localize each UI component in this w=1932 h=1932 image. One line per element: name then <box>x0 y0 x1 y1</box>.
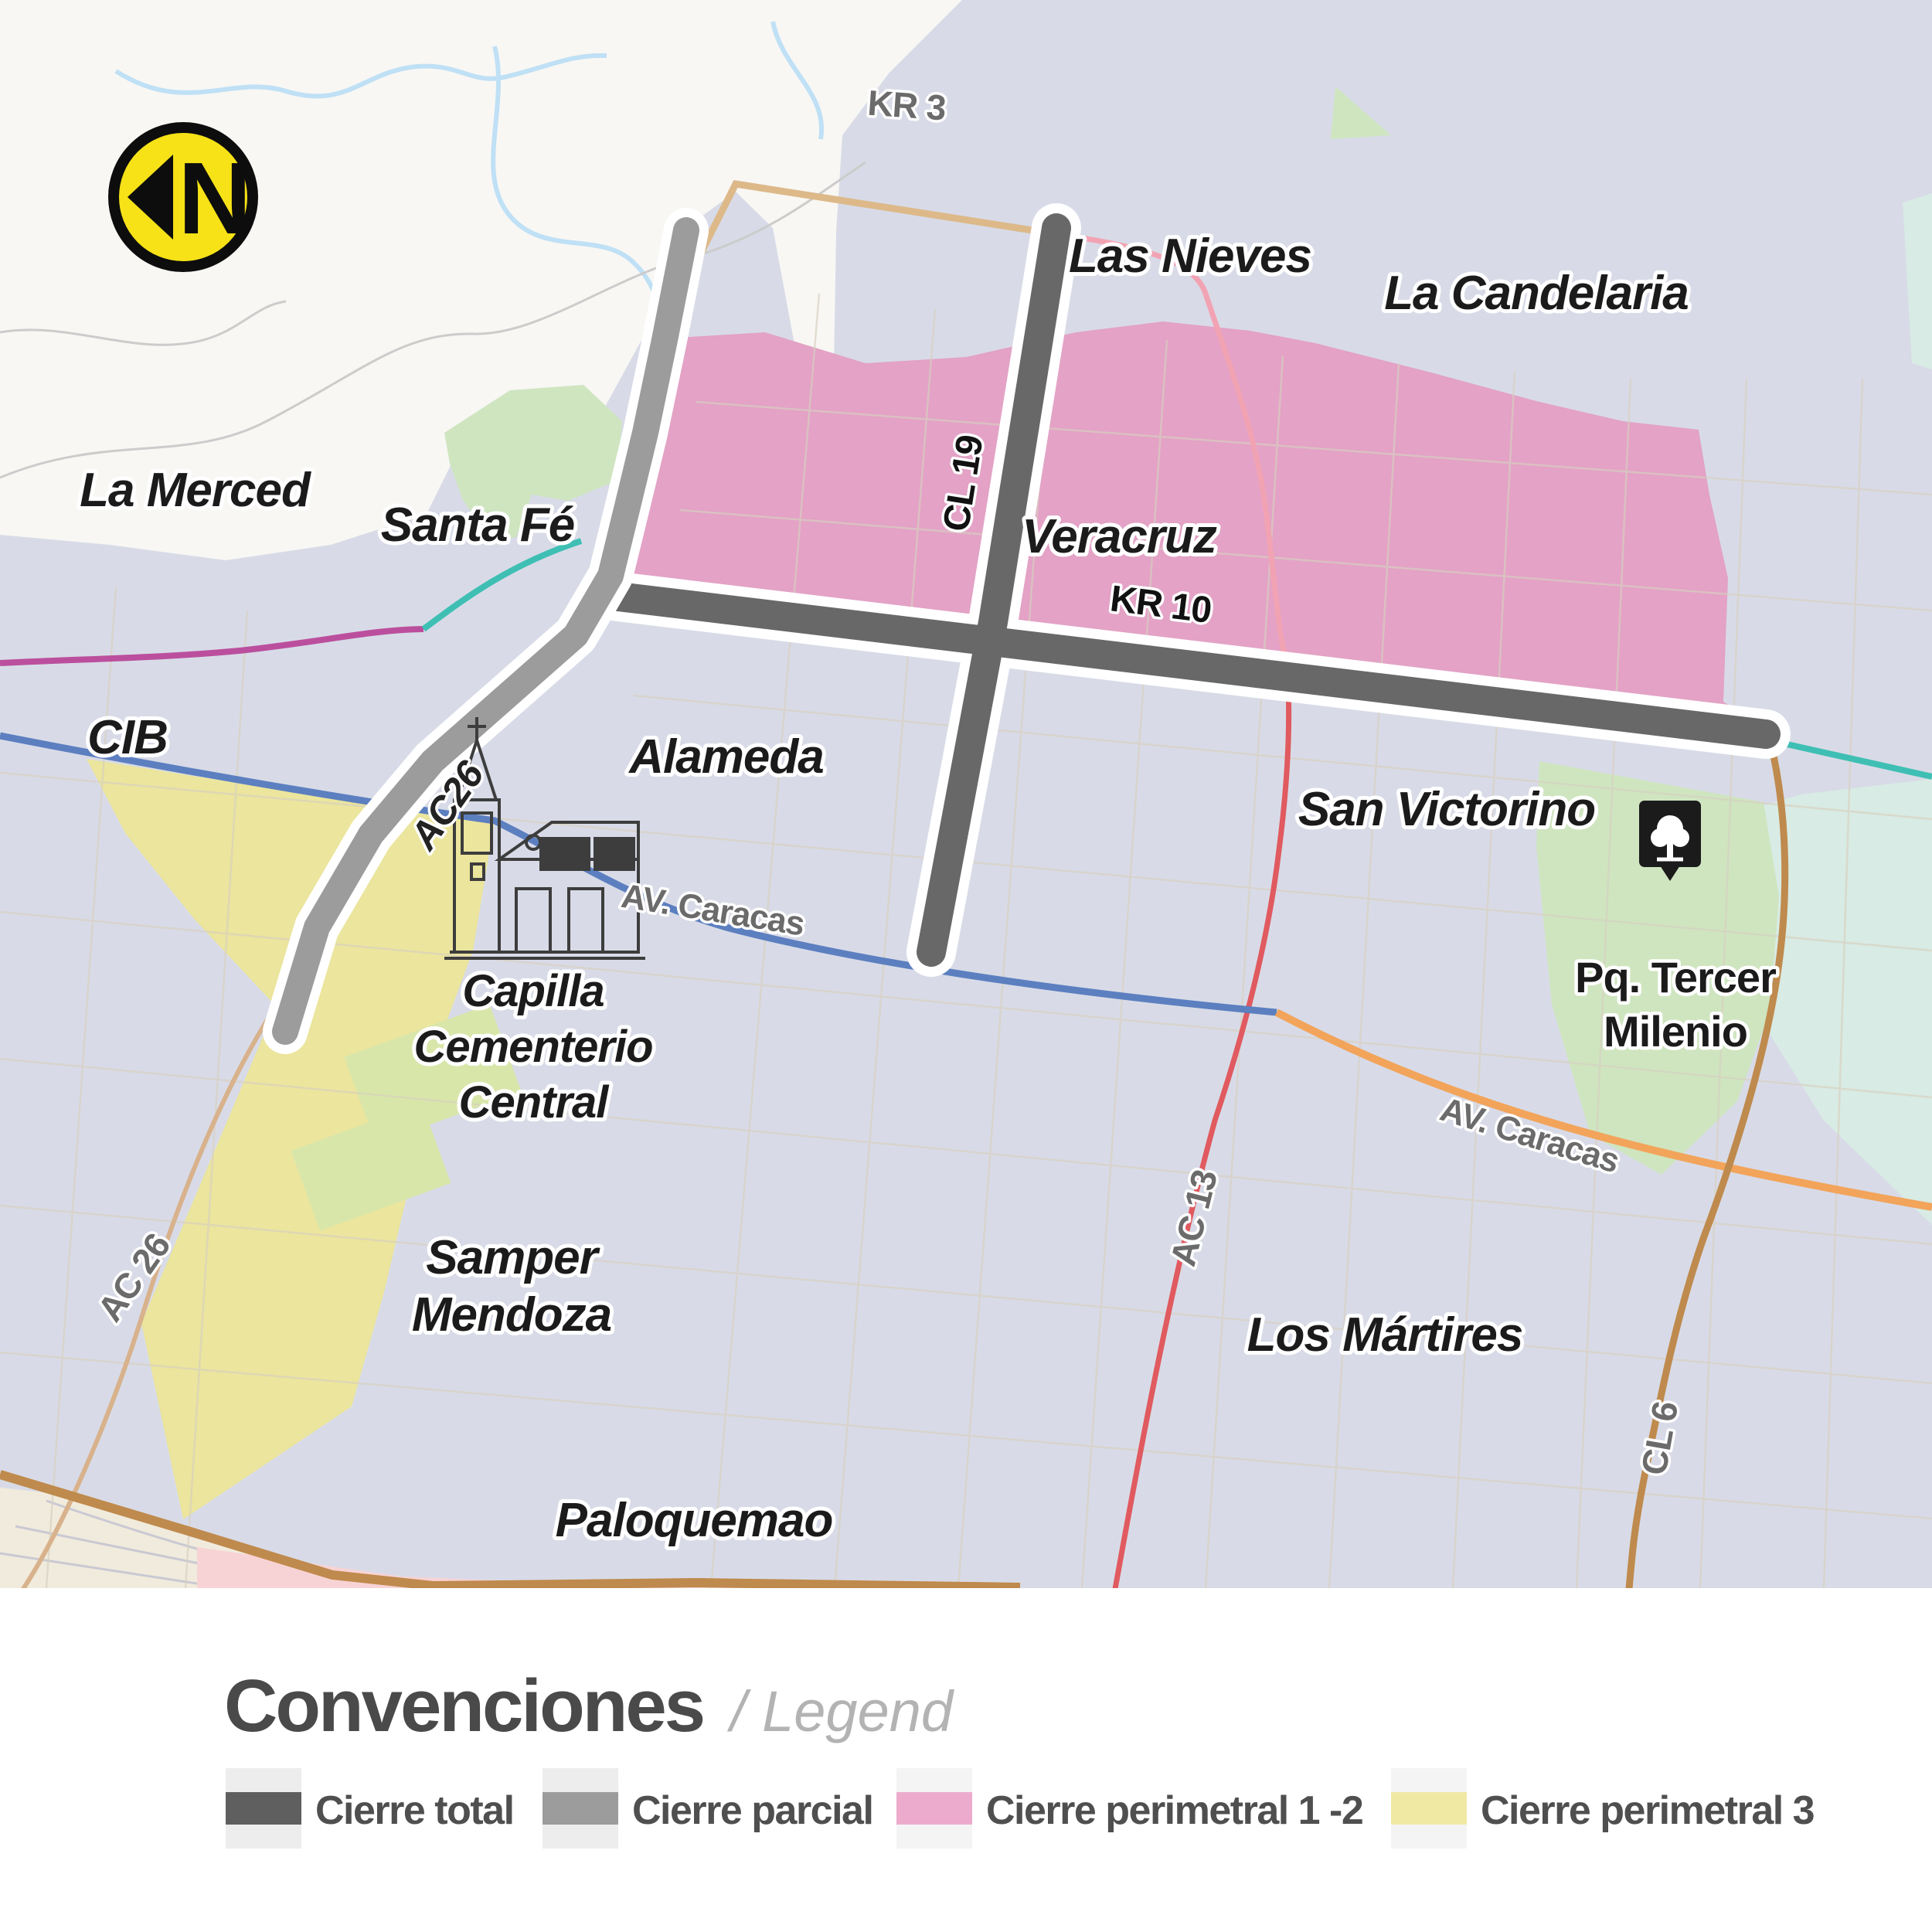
label-la-candelaria: La Candelaria <box>1384 267 1689 320</box>
legend-label-cierre-perimetral-3: Cierre perimetral 3 <box>1481 1788 1815 1833</box>
north-letter: N <box>178 141 251 255</box>
label-los-martires: Los Mártires <box>1247 1308 1523 1362</box>
label-samper-mendoza-2: Mendoza <box>412 1288 611 1342</box>
legend-label-cierre-parcial: Cierre parcial <box>632 1788 872 1833</box>
label-paloquemao: Paloquemao <box>556 1494 833 1547</box>
label-pq-tercer: Pq. Tercer <box>1575 953 1776 1002</box>
legend: Convenciones / Legend Cierre total Cierr… <box>0 1588 1932 1932</box>
legend-subtitle: / Legend <box>726 1679 955 1743</box>
label-veracruz: Veracruz <box>1022 510 1217 563</box>
road-closure-map: N La Merced Santa Fé CIB Alameda Las Nie… <box>0 0 1932 1932</box>
label-alameda: Alameda <box>628 730 823 784</box>
label-las-nieves: Las Nieves <box>1069 230 1311 283</box>
label-cib: CIB <box>87 711 168 764</box>
legend-swatch-cierre-perimetral-3 <box>1391 1792 1467 1825</box>
label-santa-fe: Santa Fé <box>381 498 574 552</box>
label-capilla-3: Central <box>459 1077 611 1128</box>
label-capilla-1: Capilla <box>462 966 604 1016</box>
legend-swatch-cierre-total <box>226 1792 301 1825</box>
label-kr3: KR 3 <box>866 83 947 128</box>
label-samper-mendoza-1: Samper <box>426 1231 600 1284</box>
legend-label-cierre-perimetral-1-2: Cierre perimetral 1 -2 <box>986 1788 1362 1833</box>
legend-swatch-cierre-parcial <box>543 1792 618 1825</box>
label-capilla-2: Cementerio <box>413 1022 652 1072</box>
label-milenio: Milenio <box>1604 1007 1747 1056</box>
north-arrow-icon: N <box>114 128 253 267</box>
label-la-merced: La Merced <box>80 464 311 517</box>
label-san-victorino: San Victorino <box>1298 783 1595 836</box>
legend-swatch-cierre-perimetral-1-2 <box>896 1792 972 1825</box>
map-area: N La Merced Santa Fé CIB Alameda Las Nie… <box>0 0 1932 1589</box>
legend-background <box>0 1588 1932 1932</box>
legend-title: Convenciones <box>224 1665 703 1747</box>
legend-label-cierre-total: Cierre total <box>315 1788 514 1833</box>
